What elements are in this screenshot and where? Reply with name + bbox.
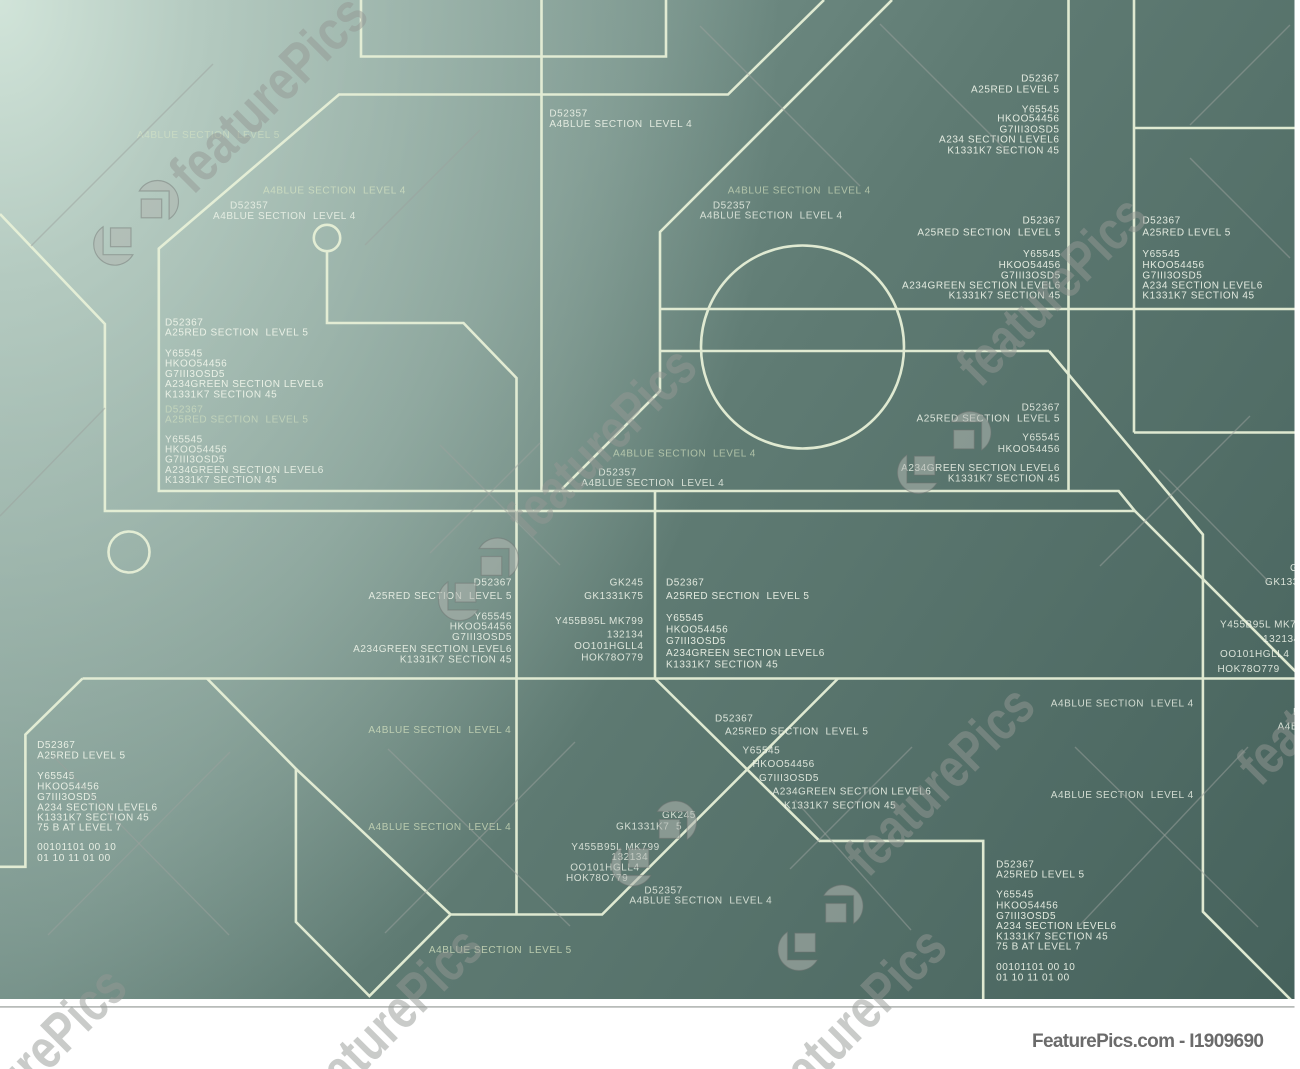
svg-text:Y65545: Y65545 [1142,249,1180,260]
svg-text:D52367: D52367 [666,577,704,588]
svg-text:Y455B95L MK799: Y455B95L MK799 [555,616,644,627]
svg-text:HKOO54456: HKOO54456 [1142,260,1204,271]
svg-text:D52367: D52367 [1022,216,1060,227]
svg-text:D52357: D52357 [549,108,587,119]
svg-text:132134: 132134 [1263,634,1300,645]
svg-text:A4BLUE SECTION LEVEL 4: A4BLUE SECTION LEVEL 4 [368,725,511,736]
svg-text:HOK78O779: HOK78O779 [581,652,643,663]
svg-text:A4BLUE SECTION LEVEL 4: A4BLUE SECTION LEVEL 4 [1051,790,1194,801]
svg-text:HKOO54456: HKOO54456 [998,444,1060,455]
svg-text:G7III3OSD5: G7III3OSD5 [759,773,819,784]
svg-text:D52367: D52367 [715,713,753,724]
svg-text:A4BLUE SECTION LEVEL 4: A4BLUE SECTION LEVEL 4 [1051,699,1194,710]
svg-text:D52367: D52367 [474,577,512,588]
svg-text:HKOO54456: HKOO54456 [666,625,728,636]
svg-text:HOK78O779: HOK78O779 [1218,664,1280,675]
svg-text:G7III3OSD5: G7III3OSD5 [666,636,726,647]
svg-text:GK245: GK245 [610,577,644,588]
svg-text:A25RED LEVEL 5: A25RED LEVEL 5 [37,750,126,761]
svg-text:Y455B95L MK799: Y455B95L MK799 [1220,619,1300,630]
svg-text:A25RED SECTION LEVEL 5: A25RED SECTION LEVEL 5 [666,591,809,602]
svg-text:K1331K7 SECTION 45: K1331K7 SECTION 45 [400,654,512,665]
svg-text:132134: 132134 [607,629,644,640]
svg-text:K1331K7 SECTION 45: K1331K7 SECTION 45 [666,659,778,670]
svg-text:D52367: D52367 [1021,73,1059,84]
svg-text:OO101HGLL4: OO101HGLL4 [574,641,643,652]
svg-text:01 10 11 01 00: 01 10 11 01 00 [37,853,111,864]
svg-text:A25RED SECTION LEVEL 5: A25RED SECTION LEVEL 5 [917,228,1060,239]
svg-text:Y65545: Y65545 [1022,432,1060,443]
svg-text:OO101HGLL4: OO101HGLL4 [1220,649,1289,660]
svg-text:75 B AT LEVEL 7: 75 B AT LEVEL 7 [37,823,122,834]
svg-text:GK1331K75: GK1331K75 [584,591,643,602]
svg-text:A25RED LEVEL 5: A25RED LEVEL 5 [971,84,1060,95]
svg-text:A4BLUE SECTION LEVEL 4: A4BLUE SECTION LEVEL 4 [213,211,356,222]
svg-text:D52357: D52357 [230,201,268,212]
svg-text:D52367: D52367 [1022,402,1060,413]
svg-text:A25RED SECTION LEVEL 5: A25RED SECTION LEVEL 5 [165,328,308,339]
svg-text:HKOO54456: HKOO54456 [753,759,815,770]
svg-text:A25RED SECTION LEVEL 5: A25RED SECTION LEVEL 5 [165,415,308,426]
svg-text:A25RED LEVEL 5: A25RED LEVEL 5 [996,870,1085,881]
svg-text:A4BLUE SECTION LEVEL 4: A4BLUE SECTION LEVEL 4 [700,211,843,222]
svg-text:K1331K7 SECTION 45: K1331K7 SECTION 45 [165,475,277,486]
svg-text:Y65545: Y65545 [666,613,704,624]
svg-text:A4BLUE SECTION LEVEL 4: A4BLUE SECTION LEVEL 4 [728,186,871,197]
svg-text:Y65545: Y65545 [743,745,781,756]
svg-text:A4BLUE SECTION LEVEL 4: A4BLUE SECTION LEVEL 4 [549,119,692,130]
svg-text:A4BLUE SECTION LEVEL 4: A4BLUE SECTION LEVEL 4 [263,186,406,197]
svg-text:01 10 11 01 00: 01 10 11 01 00 [996,972,1070,983]
svg-text:HKOO54456: HKOO54456 [997,113,1059,124]
svg-text:G7III3OSD5: G7III3OSD5 [452,632,512,643]
svg-text:Y65545: Y65545 [996,890,1034,901]
svg-text:HKOO54456: HKOO54456 [37,781,99,792]
svg-text:00101101 00 10: 00101101 00 10 [37,842,116,853]
svg-text:K1331K7 SECTION 45: K1331K7 SECTION 45 [1142,290,1254,301]
svg-text:A25RED SECTION LEVEL 5: A25RED SECTION LEVEL 5 [725,726,868,737]
svg-text:A234GREEN SECTION LEVEL6: A234GREEN SECTION LEVEL6 [666,648,825,659]
svg-text:A4BLUE SECTION LEVEL 4: A4BLUE SECTION LEVEL 4 [629,895,772,906]
svg-text:K1331K7 SECTION 45: K1331K7 SECTION 45 [165,389,277,400]
svg-text:K1331K7 SECTION 45: K1331K7 SECTION 45 [948,474,1060,485]
svg-text:75 B AT LEVEL 7: 75 B AT LEVEL 7 [996,941,1081,952]
